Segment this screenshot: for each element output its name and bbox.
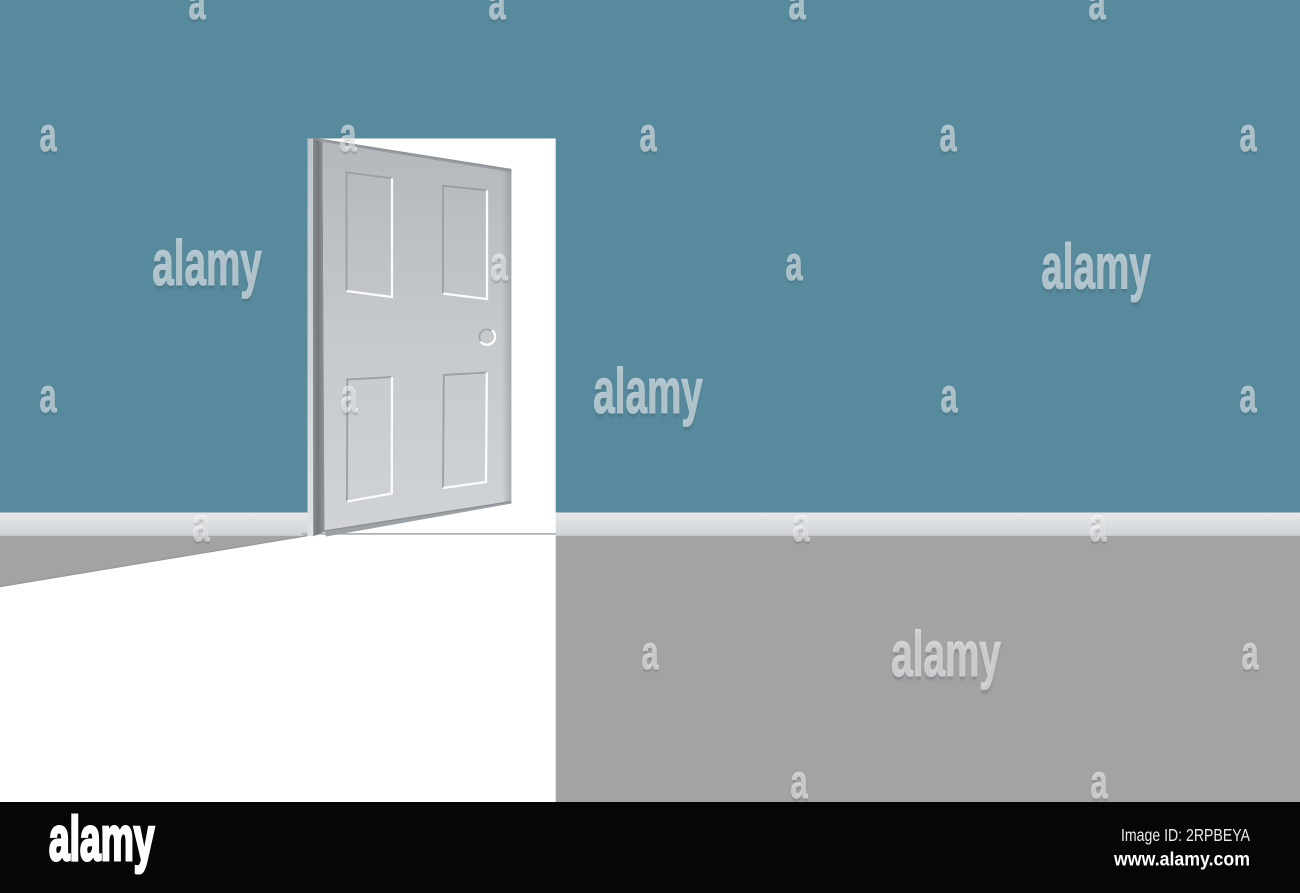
svg-text:a: a (641, 626, 659, 680)
svg-text:a: a (792, 498, 810, 552)
svg-text:a: a (785, 237, 803, 291)
svg-text:a: a (1090, 755, 1108, 809)
svg-text:www.alamy.com: www.alamy.com (1113, 849, 1250, 871)
svg-text:alamy: alamy (891, 619, 1001, 691)
svg-text:Image ID: 2RPBEYA: Image ID: 2RPBEYA (1121, 825, 1250, 845)
svg-text:a: a (340, 369, 358, 423)
svg-text:a: a (488, 0, 506, 30)
svg-text:a: a (1241, 626, 1259, 680)
svg-text:a: a (639, 108, 657, 162)
svg-text:alamy: alamy (49, 804, 155, 873)
svg-text:a: a (940, 369, 958, 423)
svg-text:a: a (192, 498, 210, 552)
svg-text:alamy: alamy (593, 356, 703, 428)
svg-text:a: a (1239, 369, 1257, 423)
svg-text:alamy: alamy (1041, 232, 1151, 304)
svg-text:alamy: alamy (152, 228, 262, 300)
svg-text:a: a (788, 0, 806, 30)
svg-text:a: a (1089, 498, 1107, 552)
svg-text:a: a (490, 237, 508, 291)
svg-text:a: a (790, 755, 808, 809)
svg-text:a: a (39, 108, 57, 162)
svg-text:a: a (39, 369, 57, 423)
svg-text:a: a (1239, 108, 1257, 162)
svg-text:a: a (339, 108, 357, 162)
svg-text:a: a (188, 0, 206, 30)
svg-text:a: a (1088, 0, 1106, 30)
svg-text:a: a (939, 108, 957, 162)
